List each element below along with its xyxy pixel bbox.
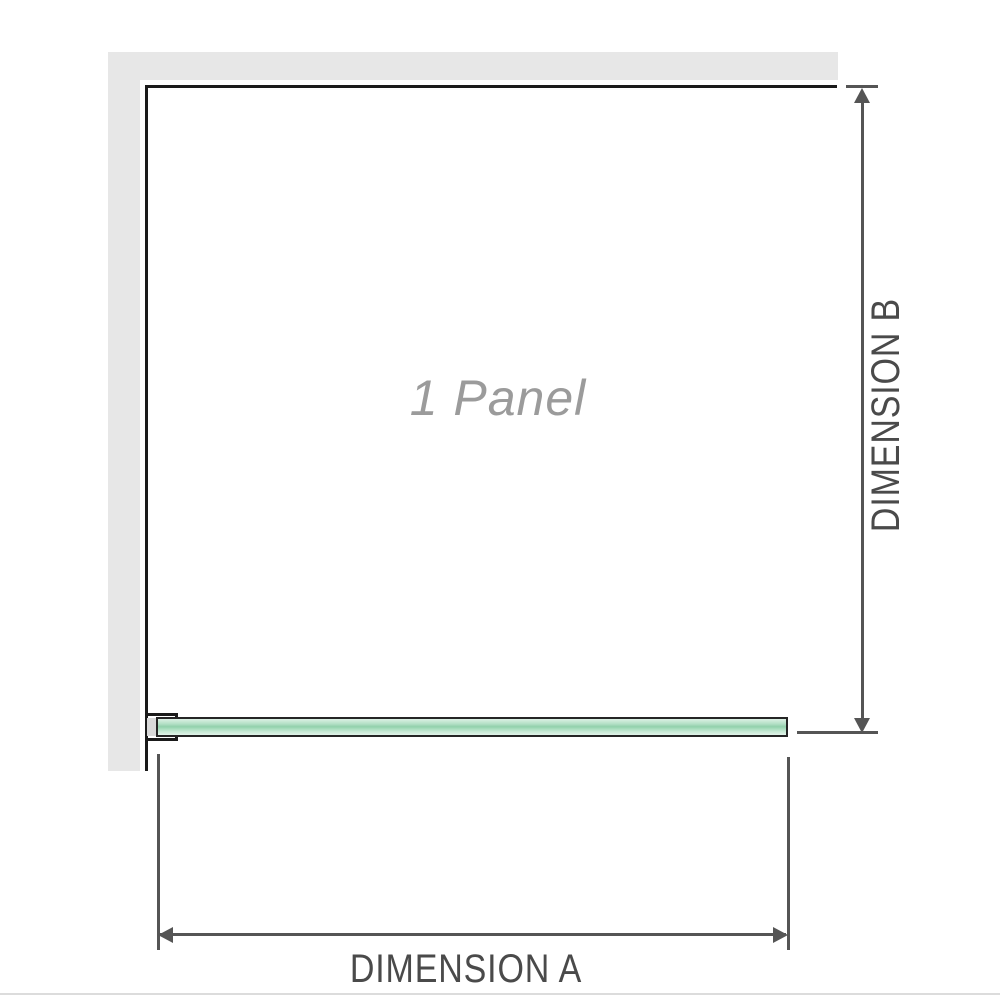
bottom-divider-line — [0, 993, 1000, 995]
dimension-a-left-extension — [157, 754, 160, 950]
dimension-a-line — [160, 933, 786, 936]
wall-left-bar — [108, 52, 140, 771]
glass-panel — [156, 717, 788, 737]
enclosure-top-line — [145, 85, 837, 88]
panel-count-label: 1 Panel — [298, 365, 698, 431]
wall-top-bar — [108, 52, 838, 80]
dimension-a-label: DIMENSION A — [296, 947, 636, 991]
arrow-down-icon — [854, 718, 870, 733]
dimension-a-right-extension — [787, 757, 790, 950]
enclosure-left-line — [145, 85, 148, 771]
shower-panel-diagram: 1 Panel DIMENSION B DIMENSION A — [0, 0, 1000, 1000]
dimension-b-label: DIMENSION B — [864, 288, 908, 543]
arrow-right-icon — [773, 927, 788, 943]
arrow-up-icon — [854, 88, 870, 103]
arrow-left-icon — [158, 927, 173, 943]
